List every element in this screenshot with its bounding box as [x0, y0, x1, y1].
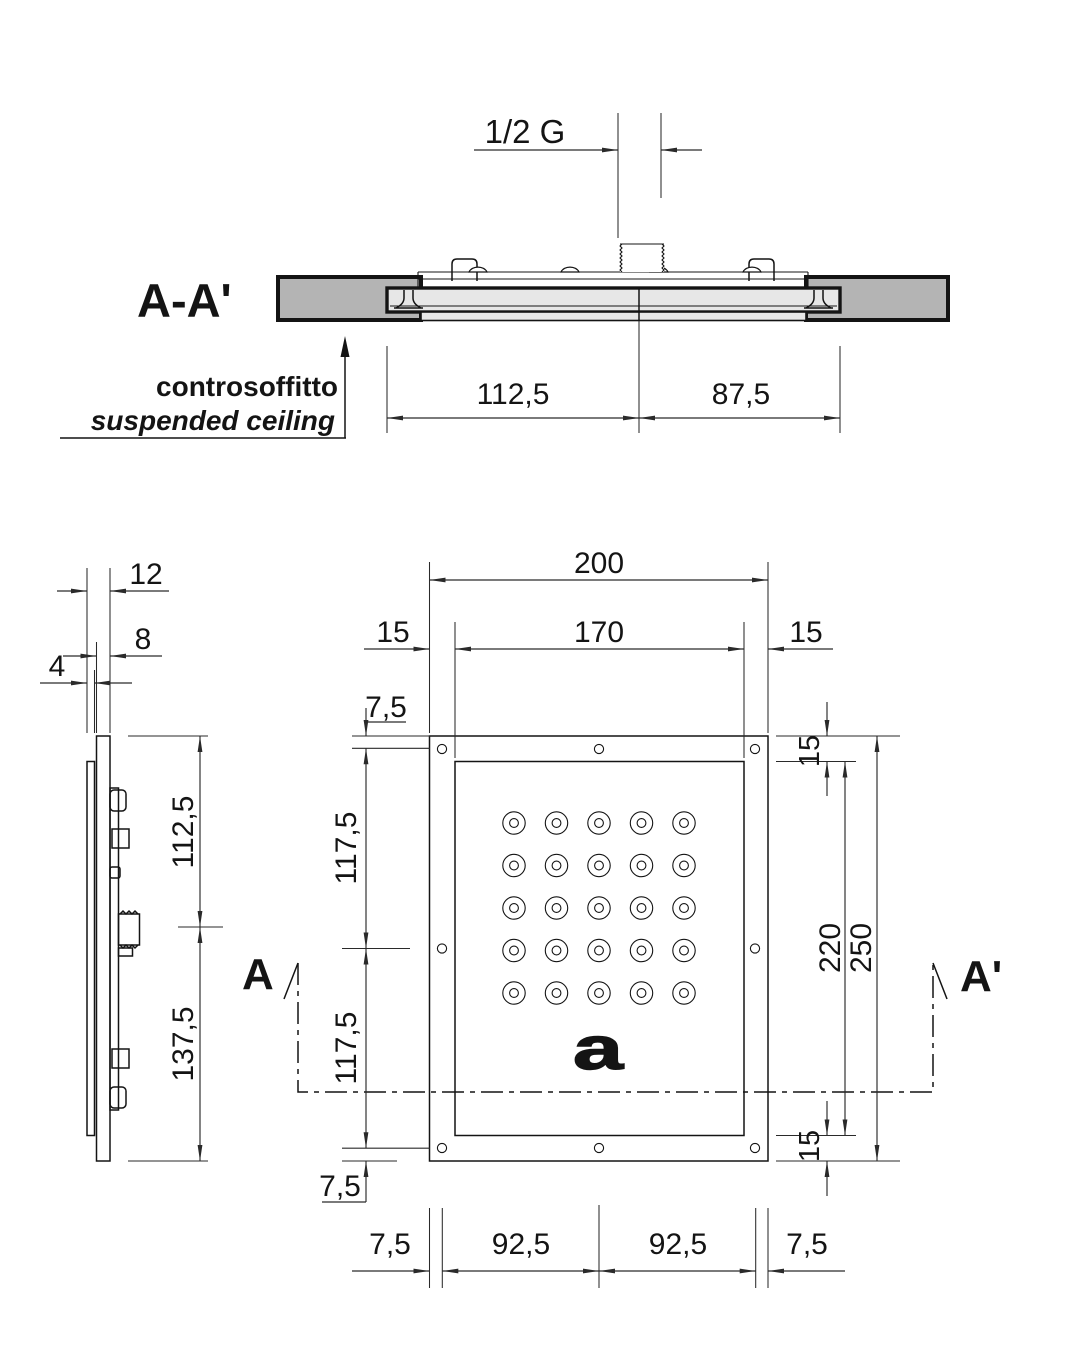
plate-strip	[421, 312, 806, 321]
nozzle	[545, 812, 567, 834]
front-view: a A A' 200 15 170 15	[242, 547, 1002, 1288]
dim-8: 8	[135, 623, 152, 656]
screw-hole	[594, 1143, 603, 1152]
nozzle	[588, 982, 610, 1004]
dim-15-top-right: 15	[789, 616, 822, 649]
ceiling-label-en: suspended ceiling	[91, 405, 335, 436]
side-depth-dimensions: 12 8 4	[40, 558, 169, 733]
brand-logo: a	[573, 1016, 625, 1083]
nozzle	[545, 854, 567, 876]
thread-dimension: 1/2 G	[474, 113, 702, 238]
nozzle	[588, 897, 610, 919]
ceiling-callout: controsoffitto suspended ceiling	[60, 336, 350, 438]
section-view: A-A'	[60, 113, 948, 438]
dim-87-5-section: 87,5	[712, 378, 770, 411]
nozzle	[545, 897, 567, 919]
nozzle	[503, 812, 525, 834]
left-dimensions: 7,5 117,5 117,5 7,5	[319, 691, 430, 1203]
dim-220: 220	[814, 923, 847, 973]
dim-12: 12	[129, 558, 162, 591]
dim-112-5-side: 112,5	[167, 796, 200, 869]
bottom-dimensions: 7,5 92,5 92,5 7,5	[352, 1205, 845, 1288]
nozzle	[630, 854, 652, 876]
screw-hole	[437, 944, 446, 953]
outer-frame	[430, 736, 769, 1161]
dim-7-5-left-top: 7,5	[365, 691, 407, 724]
screw-hole	[594, 744, 603, 753]
side-height-dimensions: 112,5 137,5	[128, 736, 223, 1161]
nozzle	[630, 939, 652, 961]
dim-4: 4	[49, 650, 66, 683]
dim-92-5-right: 92,5	[649, 1228, 707, 1261]
nozzle	[545, 939, 567, 961]
dim-117-5-upper: 117,5	[330, 812, 363, 885]
nozzle	[630, 897, 652, 919]
section-title: A-A'	[137, 274, 232, 327]
ceiling-label-it: controsoffitto	[156, 371, 338, 402]
nozzle	[673, 897, 695, 919]
drawing-page: A-A'	[0, 0, 1080, 1350]
nozzle	[588, 939, 610, 961]
nozzle	[630, 982, 652, 1004]
threaded-inlet	[620, 244, 664, 272]
housing-body	[387, 288, 840, 312]
section-marker-a-prime: A'	[960, 952, 1002, 1001]
nozzle	[673, 812, 695, 834]
dim-112-5-section: 112,5	[477, 378, 550, 411]
dim-250: 250	[845, 923, 878, 973]
right-dimensions: 15 220 250 15	[776, 702, 900, 1196]
nozzle	[588, 812, 610, 834]
dim-15-right-bottom: 15	[794, 1130, 826, 1162]
side-mounting-hardware	[110, 788, 140, 1110]
screw-hole	[437, 744, 446, 753]
dim-15-top-left: 15	[376, 616, 409, 649]
dim-170: 170	[574, 616, 624, 649]
dim-7-5-bottom-left: 7,5	[369, 1228, 411, 1261]
dim-7-5-left-bottom: 7,5	[319, 1170, 361, 1203]
dim-7-5-bottom-right: 7,5	[786, 1228, 828, 1261]
ceiling-arrow	[341, 336, 350, 357]
thread-label: 1/2 G	[485, 113, 566, 150]
nozzle	[673, 982, 695, 1004]
side-plate	[97, 736, 111, 1161]
nozzle	[503, 854, 525, 876]
screw-hole	[750, 744, 759, 753]
nozzle	[503, 939, 525, 961]
dim-200: 200	[574, 547, 624, 580]
nozzle	[630, 812, 652, 834]
nozzle	[545, 982, 567, 1004]
screw-hole	[750, 944, 759, 953]
screw-hole	[437, 1143, 446, 1152]
screw-hole	[750, 1143, 759, 1152]
nozzle	[503, 982, 525, 1004]
side-front-panel	[87, 762, 95, 1136]
dim-137-5-side: 137,5	[167, 1006, 200, 1081]
technical-drawing: A-A'	[0, 0, 1080, 1350]
section-marker-a: A	[242, 950, 274, 999]
screw-domes	[469, 267, 761, 272]
nozzle-grid	[503, 812, 695, 1004]
dim-117-5-lower: 117,5	[330, 1012, 363, 1085]
top-dimensions: 200 15 170 15	[364, 547, 833, 758]
nozzle	[673, 939, 695, 961]
nozzle	[503, 897, 525, 919]
dim-15-right-top: 15	[794, 735, 826, 767]
nozzle	[673, 854, 695, 876]
side-view: 12 8 4 112,5 137,5	[40, 558, 223, 1161]
dim-92-5-left: 92,5	[492, 1228, 550, 1261]
nozzle	[588, 854, 610, 876]
